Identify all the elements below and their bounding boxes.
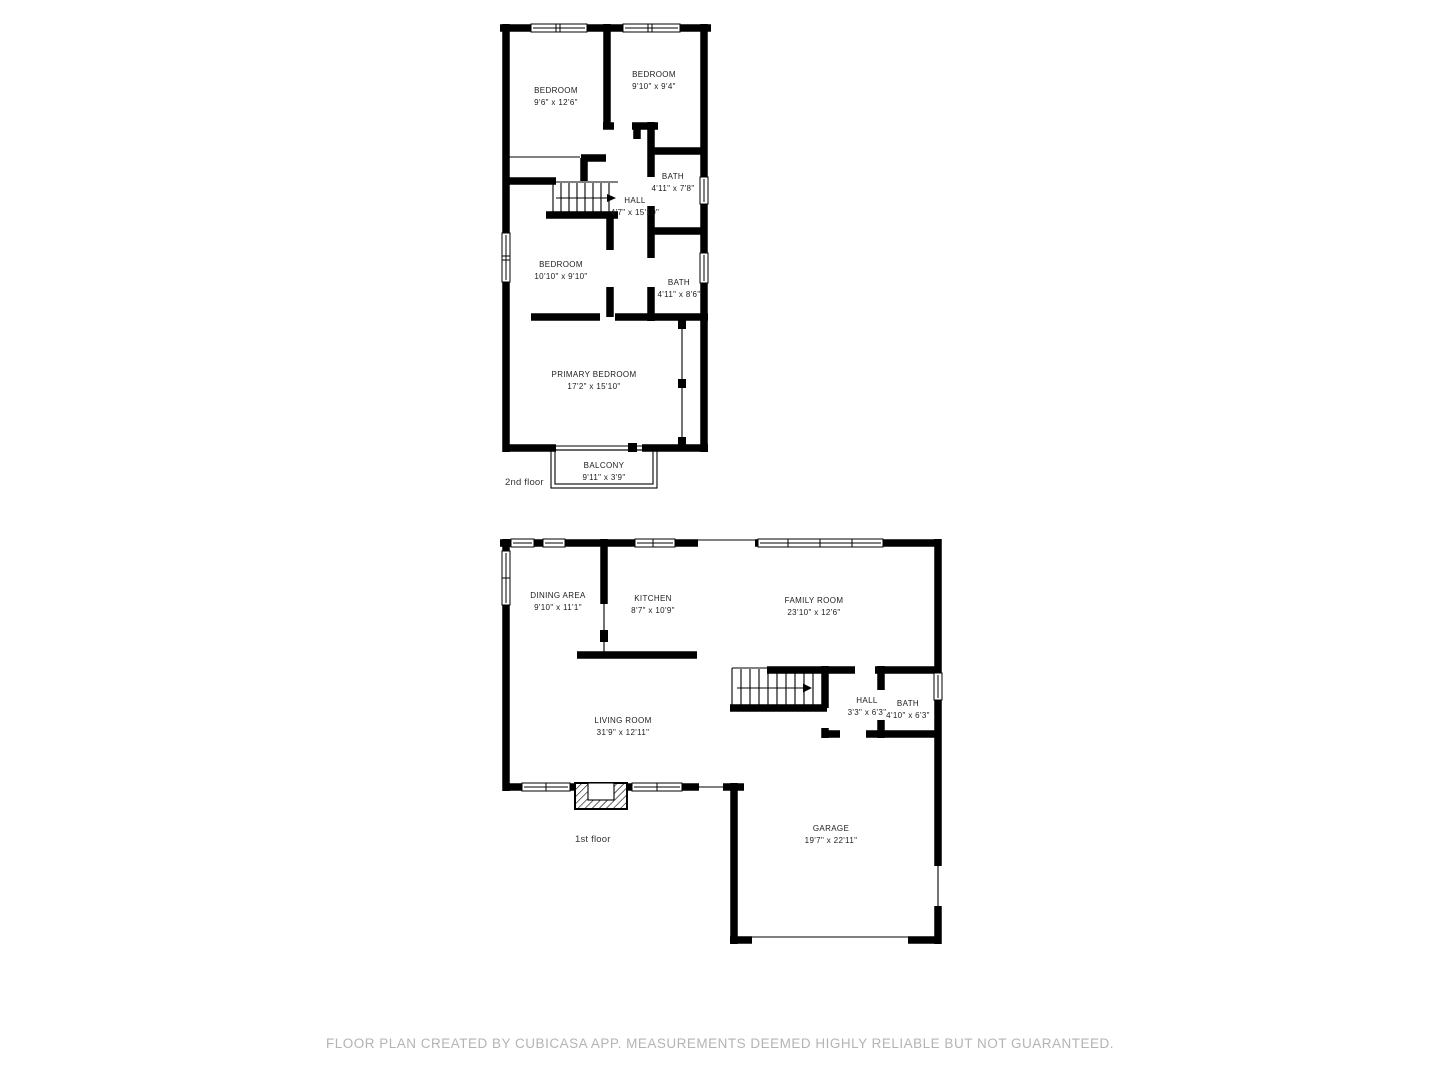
room-name: BEDROOM <box>539 259 583 271</box>
floor-caption-1st: 1st floor <box>575 834 611 845</box>
room-name: BEDROOM <box>632 69 676 81</box>
room-dims: 4'11" x 7'8" <box>651 183 694 195</box>
room-name: BALCONY <box>584 460 625 472</box>
room-dims: 31'9" x 12'11" <box>597 727 650 739</box>
room-name: HALL <box>856 695 877 707</box>
staircase-2nd-floor <box>553 182 618 214</box>
room-name: FAMILY ROOM <box>785 595 844 607</box>
room-label-bath-upper: BATH 4'11" x 7'8" <box>651 171 694 195</box>
room-name: BATH <box>897 698 919 710</box>
floorplan-page: BEDROOM 9'6" x 12'6" BEDROOM 9'10" x 9'4… <box>0 0 1440 1080</box>
room-label-family-room: FAMILY ROOM 23'10" x 12'6" <box>785 595 844 619</box>
room-dims: 10'10" x 9'10" <box>534 271 587 283</box>
room-label-bedroom-2: BEDROOM 9'10" x 9'4" <box>632 69 676 93</box>
room-label-bath-1f: BATH 4'10" x 6'3" <box>886 698 930 722</box>
room-name: HALL <box>624 195 645 207</box>
windows-1st-floor <box>502 539 942 791</box>
room-label-dining-area: DINING AREA 9'10" x 11'1" <box>530 590 585 614</box>
room-dims: 9'10" x 9'4" <box>632 81 676 93</box>
fireplace <box>575 783 627 809</box>
room-dims: 9'10" x 11'1" <box>534 602 582 614</box>
footer-disclaimer: FLOOR PLAN CREATED BY CUBICASA APP. MEAS… <box>0 1036 1440 1051</box>
room-dims: 19'7" x 22'11" <box>805 835 858 847</box>
room-name: BATH <box>668 277 690 289</box>
floorplan-drawing <box>0 0 1440 1080</box>
room-name: BATH <box>662 171 684 183</box>
room-name: GARAGE <box>813 823 849 835</box>
room-dims: 4'10" x 6'3" <box>886 710 930 722</box>
room-name: LIVING ROOM <box>594 715 651 727</box>
second-floor-plan <box>500 24 711 488</box>
room-name: DINING AREA <box>530 590 585 602</box>
room-name: BEDROOM <box>534 85 578 97</box>
floor-caption-2nd: 2nd floor <box>505 477 544 488</box>
room-label-balcony: BALCONY 9'11" x 3'9" <box>582 460 625 484</box>
room-dims: 17'2" x 15'10" <box>567 381 620 393</box>
door-opening <box>934 866 942 906</box>
room-label-garage: GARAGE 19'7" x 22'11" <box>805 823 858 847</box>
opening-line <box>604 540 758 655</box>
door-opening <box>699 783 723 791</box>
room-dims: 4'11" x 8'6" <box>657 289 700 301</box>
room-dims: 23'10" x 12'6" <box>787 607 840 619</box>
room-label-bath-lower: BATH 4'11" x 8'6" <box>657 277 700 301</box>
stair-direction-arrow-icon <box>803 684 812 693</box>
door-jamb <box>600 630 608 642</box>
closet-sliding-doors <box>678 320 686 446</box>
room-label-primary-bedroom: PRIMARY BEDROOM 17'2" x 15'10" <box>552 369 637 393</box>
room-dims: 4'7" x 15'10" <box>611 207 659 219</box>
room-dims: 8'7" x 10'9" <box>631 605 675 617</box>
room-label-bedroom-1: BEDROOM 9'6" x 12'6" <box>534 85 578 109</box>
room-label-kitchen: KITCHEN 8'7" x 10'9" <box>631 593 675 617</box>
room-dims: 3'3" x 6'3" <box>848 707 887 719</box>
room-label-hall-1f: HALL 3'3" x 6'3" <box>848 695 887 719</box>
room-label-bedroom-3: BEDROOM 10'10" x 9'10" <box>534 259 587 283</box>
room-name: PRIMARY BEDROOM <box>552 369 637 381</box>
room-name: KITCHEN <box>634 593 672 605</box>
room-label-hall-2f: HALL 4'7" x 15'10" <box>611 195 659 219</box>
room-dims: 9'11" x 3'9" <box>582 472 625 484</box>
room-label-living-room: LIVING ROOM 31'9" x 12'11" <box>594 715 651 739</box>
room-dims: 9'6" x 12'6" <box>534 97 578 109</box>
